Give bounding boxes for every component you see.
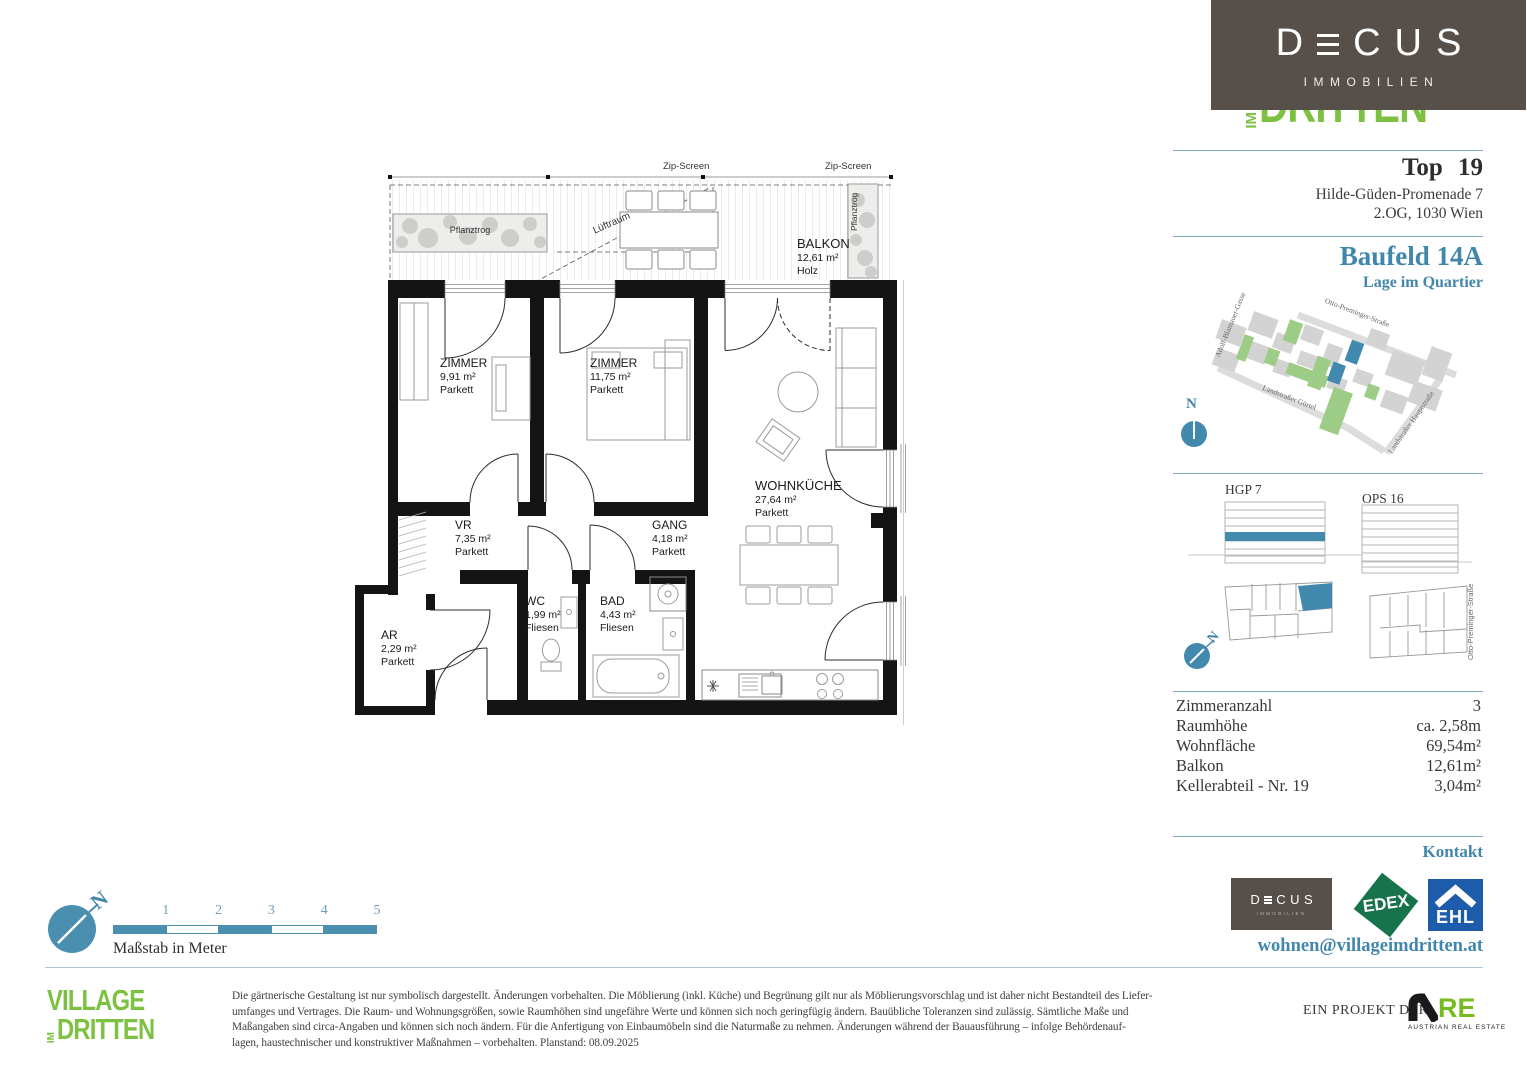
ops16-elevation — [1362, 505, 1458, 573]
fact-row-wohnflaeche: Wohnfläche69,54m² — [1176, 736, 1481, 756]
divider-line — [1173, 691, 1483, 692]
ehl-house-icon — [1428, 879, 1483, 909]
are-subtitle: AUSTRIAN REAL ESTATE — [1408, 1024, 1506, 1031]
are-logo-mark-icon — [1408, 992, 1438, 1022]
room-label-gang: GANG 4,18 m² Parkett — [652, 518, 688, 559]
unit-title: Top 19 — [1173, 154, 1483, 182]
divider-line — [1173, 150, 1483, 151]
pflanztrog-label-right: Pflanztrog — [849, 193, 859, 231]
divider-line — [1173, 236, 1483, 237]
baufeld-title: Baufeld 14A — [1173, 241, 1483, 272]
room-label-bad: BAD 4,43 m² Fliesen — [600, 594, 636, 635]
village-im-text: IM — [47, 1032, 57, 1043]
room-label-balkon: BALKON 12,61 m² Holz — [797, 236, 850, 278]
village-dritten-text: DRITTEN — [57, 1017, 154, 1044]
zip-screen-label-right: Zip-Screen — [825, 161, 871, 172]
map-compass-icon — [1181, 421, 1207, 447]
map-compass-n: N — [1186, 396, 1197, 413]
room-label-zimmer-2: ZIMMER 11,75 m² Parkett — [590, 356, 637, 397]
disclaimer-line-4: lagen, haustechnischer und konstruktiver… — [232, 1037, 639, 1049]
zip-screen-label-left: Zip-Screen — [663, 161, 709, 172]
decus-e-bars-icon — [1317, 34, 1339, 56]
kontakt-title: Kontakt — [1173, 842, 1483, 862]
floorplan-sheet: Zip-Screen Zip-Screen Pflanztrog Pflanzt… — [0, 0, 1527, 1080]
decus-logo-kontakt: D C U S IMMOBILIEN — [1231, 878, 1332, 930]
room-label-zimmer-1: ZIMMER 9,91 m² Parkett — [440, 356, 487, 397]
scale-tick-5: 5 — [374, 903, 381, 919]
disclaimer-line-3: Maßangaben sind circa-Angaben und können… — [232, 1021, 1126, 1033]
contact-email: wohnen@villageimdritten.at — [1173, 936, 1483, 957]
village-dritten-logo: VILLAGE IM DRITTEN — [47, 988, 176, 1043]
lage-subtitle: Lage im Quartier — [1173, 274, 1483, 292]
quartier-map — [1178, 293, 1485, 465]
room-label-vr: VR 7,35 m² Parkett — [455, 518, 491, 559]
footer-divider-line — [45, 967, 1483, 968]
scale-caption: Maßstab in Meter — [113, 940, 227, 958]
decus-subtitle: IMMOBILIEN — [1304, 75, 1440, 89]
outdoor-dining-set — [620, 191, 718, 269]
room-label-wc: WC 1,99 m² Fliesen — [525, 594, 561, 635]
decus-e-bars-icon — [1264, 896, 1272, 904]
address-line-2: 2.OG, 1030 Wien — [1173, 205, 1483, 223]
hgp7-elevation — [1225, 502, 1325, 563]
divider-line — [1173, 836, 1483, 837]
ehl-logo: EHL — [1428, 879, 1483, 931]
decus-subtitle-small: IMMOBILIEN — [1256, 911, 1306, 916]
village-im-text: IM — [1244, 112, 1259, 129]
fact-row-kellerabteil: Kellerabteil - Nr. 193,04m² — [1176, 776, 1481, 796]
disclaimer-line-2: umfanges und Vertrages. Die Raum- und Wo… — [232, 1006, 1128, 1018]
hgp7-floorplan-outline — [1225, 582, 1332, 640]
decus-wordmark-small: D C U S — [1250, 892, 1312, 907]
scale-tick-1: 1 — [162, 903, 169, 919]
room-label-ar: AR 2,29 m² Parkett — [381, 628, 417, 669]
pflanztrog-label-left: Pflanztrog — [450, 225, 491, 235]
fact-row-zimmeranzahl: Zimmeranzahl3 — [1176, 696, 1481, 716]
divider-line — [1173, 473, 1483, 474]
decus-logo-header: D C U S IMMOBILIEN — [1211, 0, 1526, 110]
village-text: VILLAGE — [47, 988, 144, 1015]
room-label-wohnkueche: WOHNKÜCHE 27,64 m² Parkett — [755, 478, 842, 520]
street-label-otto-vertical: Otto-Preminger-Straße — [1466, 584, 1475, 660]
are-logo: RE — [1408, 992, 1476, 1022]
address-line-1: Hilde-Güden-Promenade 7 — [1173, 186, 1483, 204]
decus-wordmark: D C U S — [1276, 22, 1462, 65]
fact-row-raumhoehe: Raumhöheca. 2,58m — [1176, 716, 1481, 736]
ops16-floorplan-outline — [1370, 586, 1467, 658]
scale-tick-2: 2 — [215, 903, 222, 919]
building-diagrams — [1180, 480, 1487, 675]
fact-row-balkon: Balkon12,61m² — [1176, 756, 1481, 776]
buildings-compass-icon — [1184, 640, 1214, 669]
edex-logo: EDEX — [1352, 872, 1420, 938]
scale-tick-3: 3 — [268, 903, 275, 919]
disclaimer-line-1: Die gärtnerische Gestaltung ist nur symb… — [232, 990, 1152, 1002]
scale-tick-4: 4 — [321, 903, 328, 919]
